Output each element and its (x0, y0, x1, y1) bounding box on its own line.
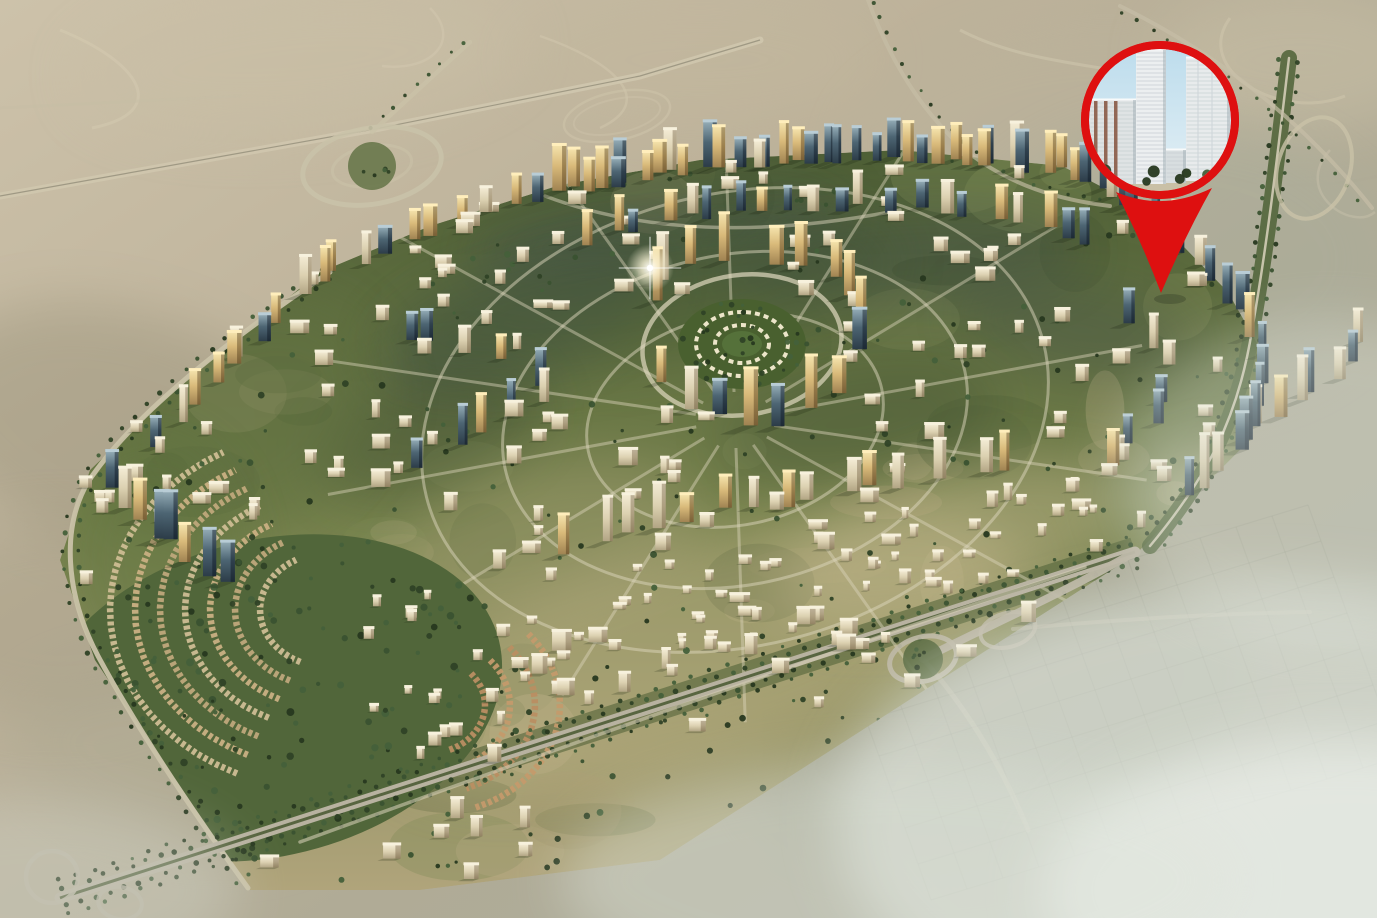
scene-canvas (0, 0, 1377, 918)
pin-shadow (1154, 294, 1186, 304)
aerial-masterplan-image (0, 0, 1377, 918)
aerial-city-rendering (0, 0, 1377, 918)
